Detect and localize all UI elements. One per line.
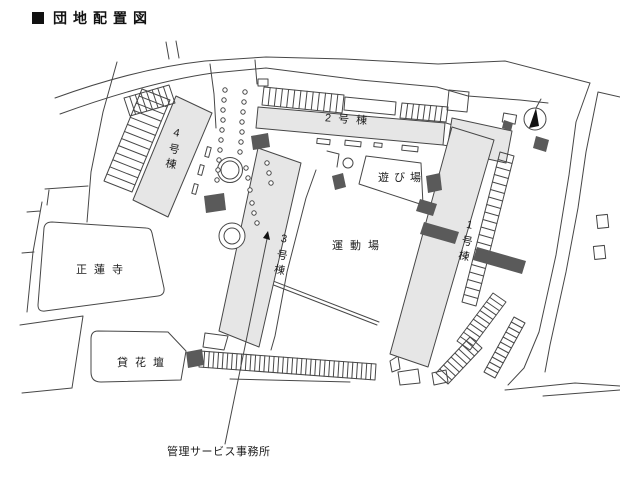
label-sports-ground: 運動場 <box>332 237 386 253</box>
walk-band-4 <box>533 136 549 152</box>
tree-large <box>343 158 353 168</box>
walk-band-3 <box>473 247 526 274</box>
stair-block-3 <box>186 349 204 368</box>
building-1-shape <box>390 127 494 367</box>
site-plan-page: 団地配置図 <box>0 0 620 484</box>
road-top-upper-edge <box>55 57 590 98</box>
stair-block-1 <box>251 133 270 150</box>
road-left-outer <box>22 186 88 312</box>
bench-4 <box>402 145 418 152</box>
bench-1 <box>317 138 330 144</box>
bench-3 <box>374 143 382 148</box>
site-map-canvas <box>0 0 620 484</box>
planter-circle-inner-1 <box>221 161 239 179</box>
road-bottom-right <box>505 383 620 396</box>
small-lot-outline <box>203 333 228 350</box>
bottom-strip-lower-edge <box>230 379 350 382</box>
road-network <box>20 41 620 396</box>
label-temple: 正蓮寺 <box>76 261 130 277</box>
north-arrow-icon <box>524 99 546 130</box>
stair-block-4 <box>332 173 346 190</box>
label-playground: 遊び場 <box>378 169 426 185</box>
roadside-structure-2 <box>593 245 605 259</box>
bench-2 <box>345 140 361 147</box>
north-arrow-tick <box>536 99 541 108</box>
label-building-2: 2号棟 <box>325 109 375 128</box>
road-stub-top <box>166 41 179 59</box>
walkway-west-edge <box>210 64 216 128</box>
playground-west-wall <box>327 151 339 167</box>
bench-5 <box>205 147 211 158</box>
stair-block-2 <box>204 193 226 213</box>
stair-block-5 <box>426 173 442 193</box>
stair-top-block <box>258 79 268 86</box>
planter-circle-inner-2 <box>224 228 240 244</box>
label-office: 管理サービス事務所 <box>167 443 271 459</box>
label-flower-bed: 貸花壇 <box>117 354 171 370</box>
bench-6 <box>198 165 204 176</box>
road-right-left-edge <box>508 83 590 385</box>
bench-7 <box>192 184 198 195</box>
road-right-right-edge <box>545 92 620 372</box>
block-below-temple <box>20 316 83 393</box>
roadside-structure-1 <box>596 214 608 228</box>
walkway-north-connector <box>255 60 257 84</box>
